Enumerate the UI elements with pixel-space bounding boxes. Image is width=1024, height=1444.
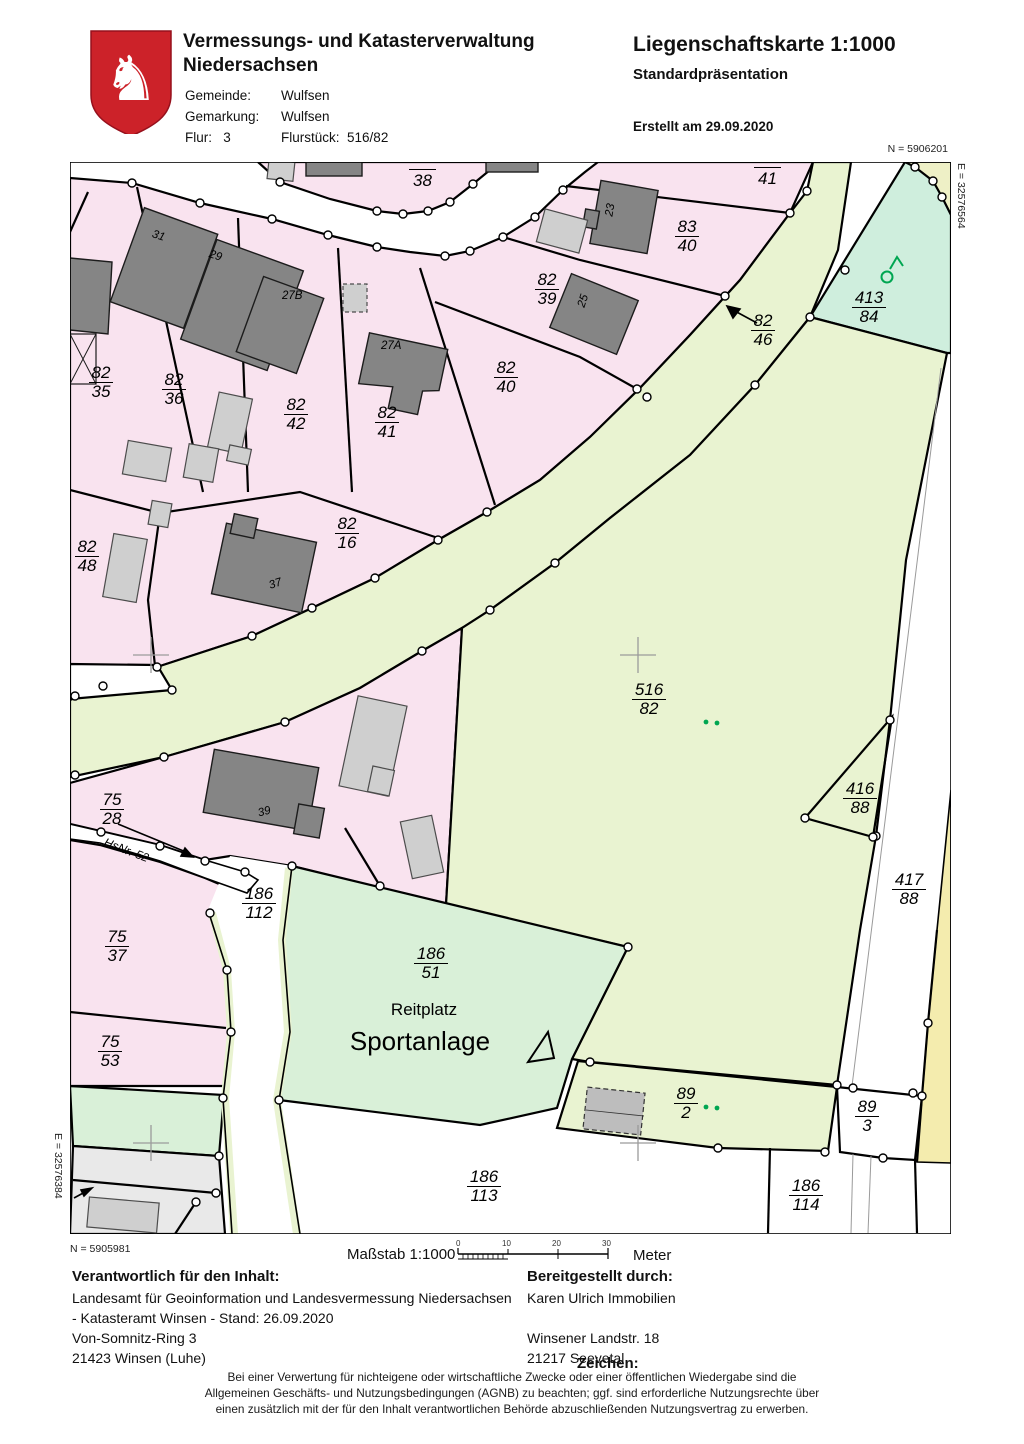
parcel-label-82-35: 8235	[75, 364, 127, 401]
agency-title-line1: Vermessungs- und Katasterverwaltung	[183, 30, 535, 54]
coord-north-top: N = 5906201	[888, 143, 948, 155]
flur-value: 3	[223, 130, 231, 145]
shed-27b-east	[343, 284, 367, 312]
coord-north-bottom: N = 5905981	[70, 1243, 130, 1255]
house-number-27b: 27B	[282, 290, 302, 302]
created-date: Erstellt am 29.09.2020	[633, 119, 773, 134]
building-long-annex	[368, 766, 395, 796]
parcel-label-417-88: 41788	[883, 871, 935, 908]
document-title: Liegenschaftskarte 1:1000	[633, 33, 896, 57]
label-sportanlage: Sportanlage	[310, 1026, 530, 1057]
gemeinde-label: Gemeinde:	[185, 86, 279, 105]
shed-8248-b	[183, 444, 218, 483]
flur-label: Flur:	[185, 130, 212, 145]
cadastral-map	[70, 162, 951, 1234]
gemarkung-label: Gemarkung:	[185, 107, 279, 126]
document-subtitle: Standardpräsentation	[633, 66, 788, 83]
building-clipped-top2	[486, 162, 538, 172]
building-gray-sw	[87, 1197, 159, 1233]
parcel-label-82-36: 8236	[148, 371, 200, 408]
scale-tick-30: 30	[602, 1240, 611, 1248]
coord-east-left: E = 32576384	[52, 1133, 64, 1199]
flurstueck-cell: Flurstück: 516/82	[281, 128, 390, 147]
disclaimer-line-2: Allgemeinen Geschäfts- und Nutzungsbedin…	[0, 1386, 1024, 1400]
scale-tick-10: 10	[502, 1240, 511, 1248]
flurstueck-value: 516/82	[347, 130, 388, 145]
parcel-label-82-39: 8239	[521, 271, 573, 308]
scale-text: Maßstab 1:1000	[347, 1246, 455, 1263]
building-37-porch	[230, 514, 258, 539]
parcel-label-82-42: 8242	[270, 396, 322, 433]
parcel-label-82-40: 8240	[480, 359, 532, 396]
provided-line-2: Winsener Landstr. 18	[527, 1330, 659, 1346]
parcel-label-516-82: 51682	[623, 681, 675, 718]
building-23	[590, 180, 658, 253]
provided-heading: Bereitgestellt durch:	[527, 1268, 673, 1285]
coord-east-right: E = 32576564	[955, 163, 967, 229]
parcel-label-75-28: 7528	[86, 791, 138, 828]
parcel-label-416-88: 41688	[834, 780, 886, 817]
parcel-mint-sw	[70, 1086, 224, 1156]
flurstueck-label: Flurstück:	[281, 130, 340, 145]
parcel-label-82-46: 8246	[737, 312, 789, 349]
responsible-heading: Verantwortlich für den Inhalt:	[72, 1268, 280, 1285]
niedersachsen-coat-of-arms: ♞	[88, 28, 174, 134]
parcel-label-75-53: 7553	[84, 1033, 136, 1070]
parcel-label-186-114: 186114	[780, 1177, 832, 1214]
gemarkung-value: Wulfsen	[281, 107, 390, 126]
parcel-label-38: 38	[409, 169, 436, 191]
scale-unit: Meter	[633, 1247, 671, 1264]
gemeinde-value: Wulfsen	[281, 86, 390, 105]
disclaimer-line-1: Bei einer Verwertung für nichteigene ode…	[0, 1370, 1024, 1384]
parcel-label-82-48: 8248	[61, 538, 113, 575]
parcel-label-186-113: 186113	[458, 1168, 510, 1205]
building-39-wing	[294, 804, 325, 838]
parcel-label-75-37: 7537	[91, 928, 143, 965]
scale-bar: 0 10 20 30	[455, 1240, 625, 1264]
shed-8248-d	[148, 500, 172, 527]
map-metadata: Gemeinde: Wulfsen Gemarkung: Wulfsen Flu…	[183, 84, 392, 149]
parcel-label-186-112: 186112	[233, 885, 285, 922]
house-number-27a: 27A	[381, 340, 401, 352]
responsible-line-3: Von-Somnitz-Ring 3	[72, 1330, 197, 1346]
parcel-label-82-41: 8241	[361, 404, 413, 441]
parcel-label-413-84: 41384	[843, 289, 895, 326]
scale-tick-20: 20	[552, 1240, 561, 1248]
scale-tick-0: 0	[456, 1240, 461, 1248]
parcel-label-83-40: 8340	[661, 218, 713, 255]
building-clipped-left	[70, 258, 112, 334]
responsible-line-1: Landesamt für Geoinformation und Landesv…	[72, 1290, 512, 1306]
liegenschaftskarte-page: ♞ Vermessungs- und Katasterverwaltung Ni…	[0, 0, 1024, 1444]
building-clipped-top1	[306, 162, 362, 176]
agency-title-line2: Niedersachsen	[183, 54, 535, 78]
building-892-dashed	[583, 1087, 645, 1135]
parcel-label-186-51: 18651	[405, 945, 457, 982]
shed-8248-a	[122, 440, 171, 481]
parcel-label-89-3: 893	[841, 1098, 893, 1135]
disclaimer-line-3: einen zusätzlich mit der für den Inhalt …	[0, 1402, 1024, 1416]
responsible-line-2: - Katasteramt Winsen - Stand: 26.09.2020	[72, 1310, 333, 1326]
agency-title: Vermessungs- und Katasterverwaltung Nied…	[183, 30, 535, 78]
parcel-label-82-16: 8216	[321, 515, 373, 552]
parcel-label-89-2: 892	[660, 1085, 712, 1122]
label-reitplatz: Reitplatz	[374, 1000, 474, 1020]
parcel-label-41: 41	[754, 167, 781, 189]
saxon-steed-icon: ♞	[103, 45, 159, 114]
house-number-23: 23	[603, 203, 617, 218]
responsible-line-4: 21423 Winsen (Luhe)	[72, 1350, 206, 1366]
flur-cell: Flur: 3	[185, 128, 279, 147]
provided-line-1: Karen Ulrich Immobilien	[527, 1290, 676, 1306]
